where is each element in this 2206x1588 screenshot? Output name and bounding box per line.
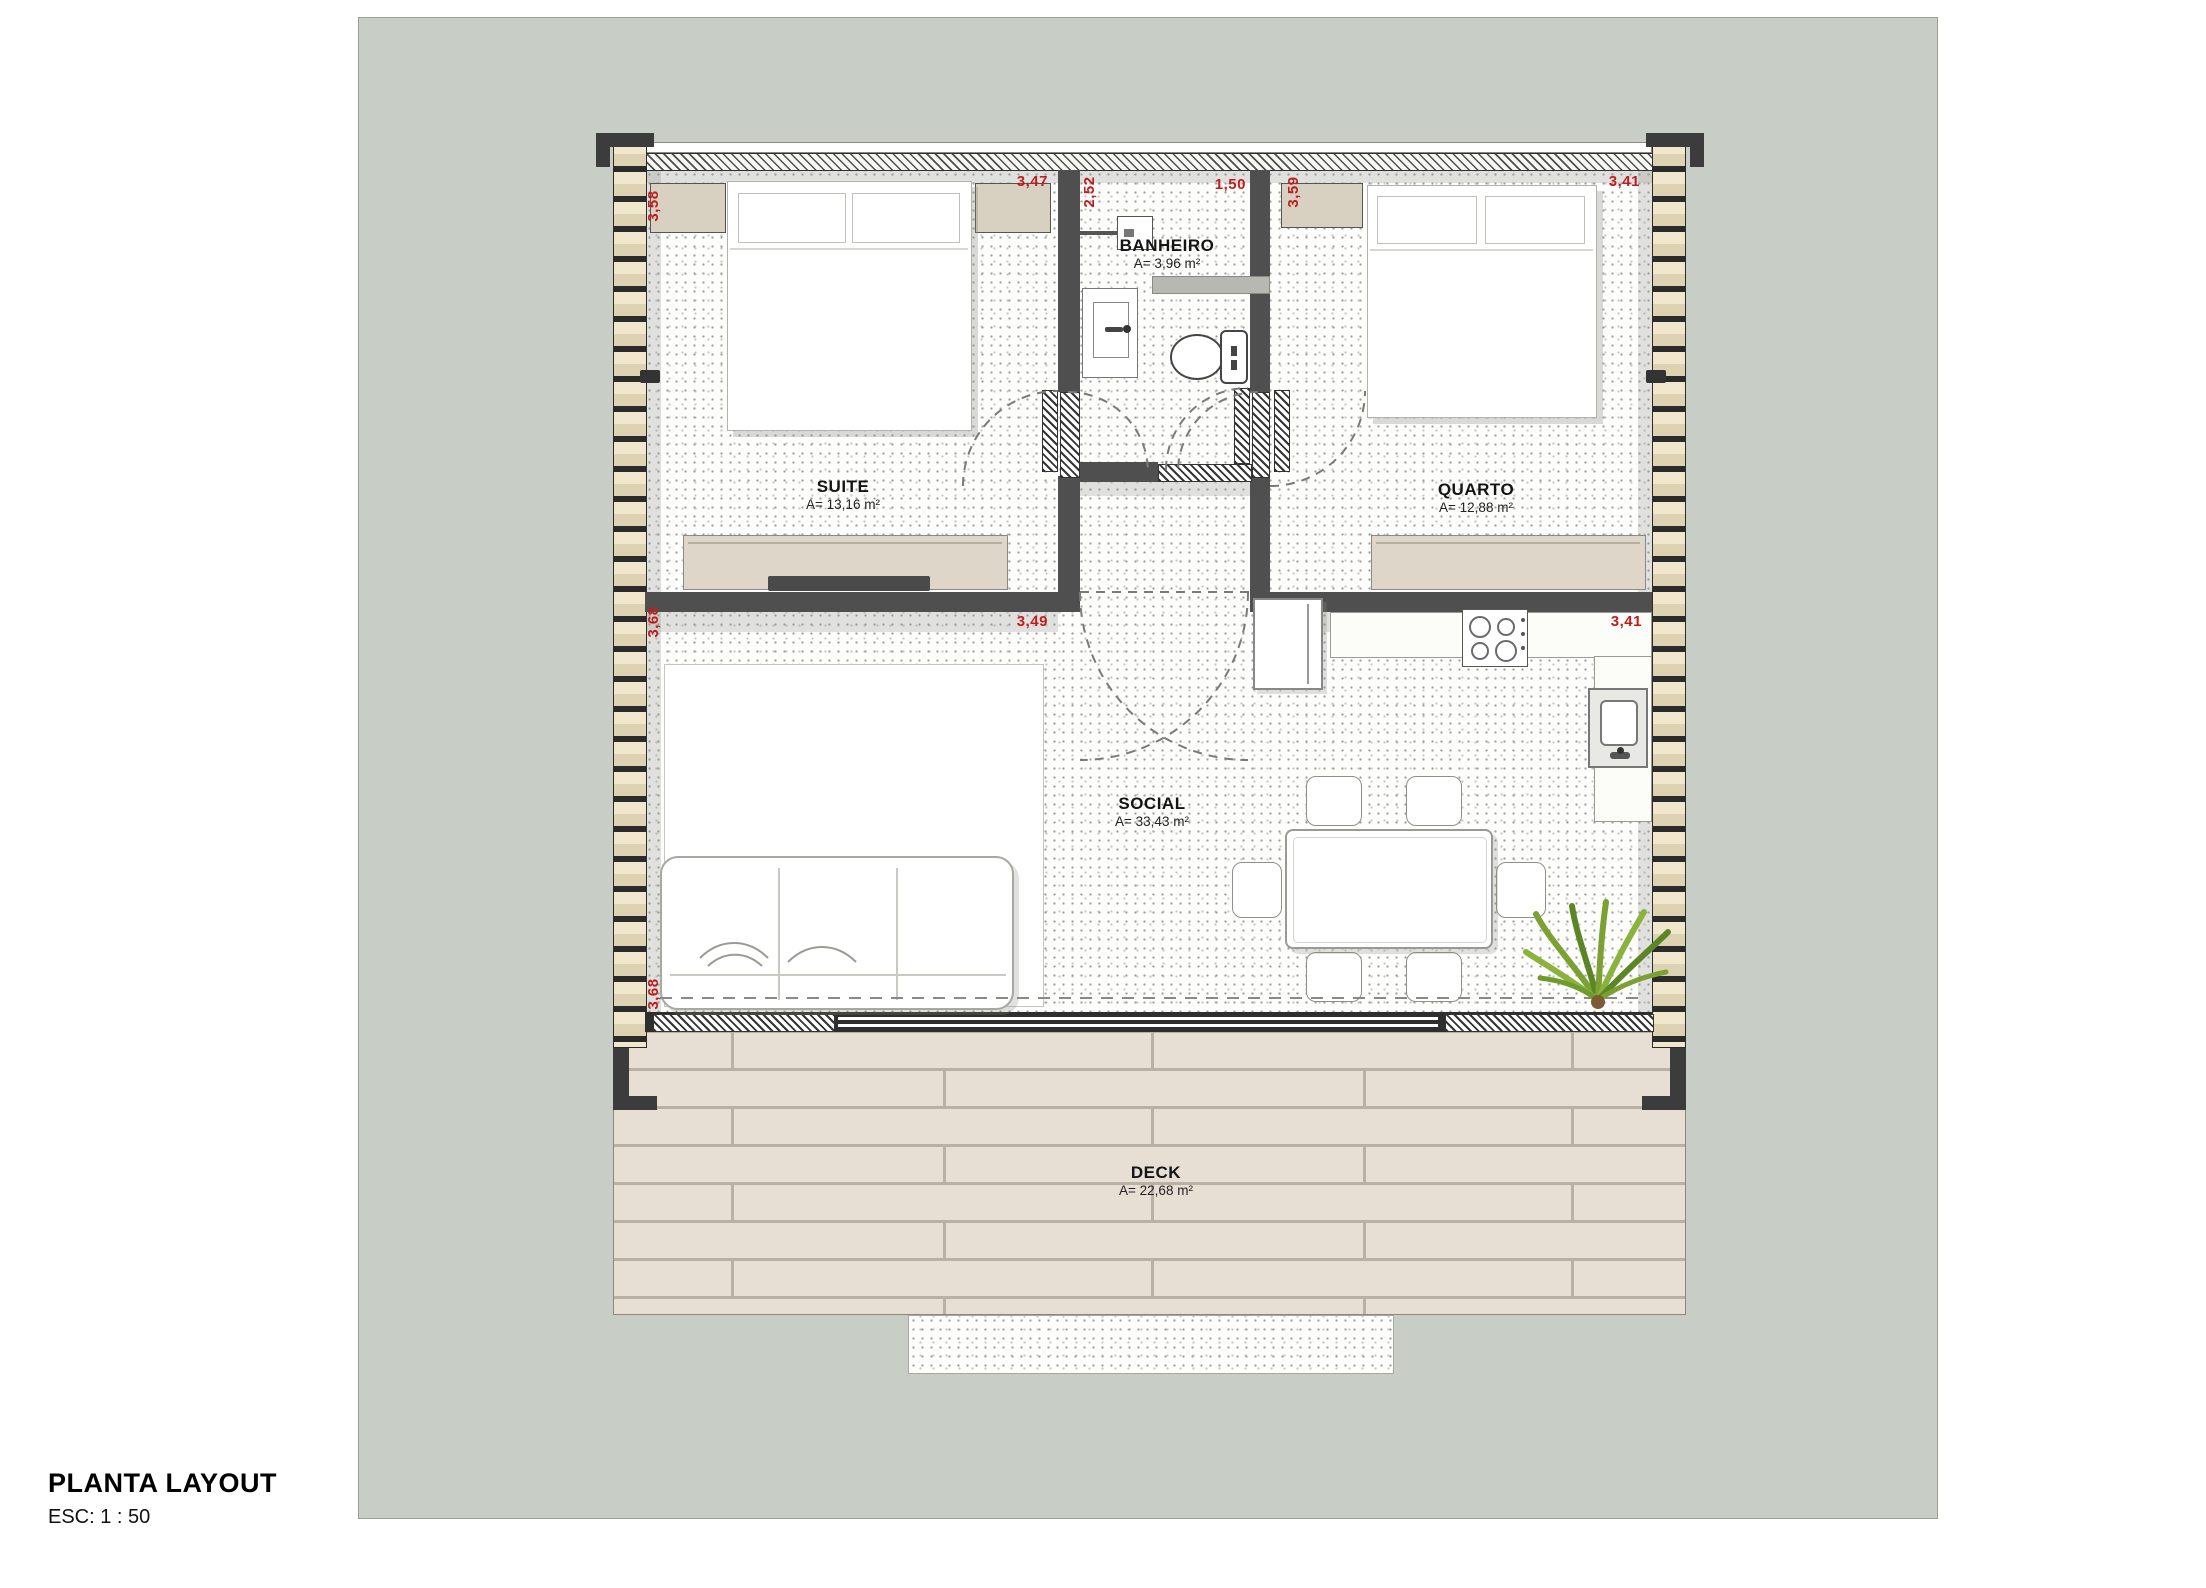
cooktop-knob	[1521, 646, 1525, 650]
room-area-banheiro: A= 3,96 m²	[1067, 256, 1267, 271]
dining-chair	[1306, 952, 1362, 1002]
bathroom-bottom-wall	[1080, 462, 1158, 482]
fridge-door-seam	[1307, 604, 1309, 684]
dresser-edge-line	[1376, 542, 1640, 544]
sofa-seam	[896, 868, 898, 1000]
bathroom-left-wall	[1058, 170, 1080, 392]
dining-chair	[1496, 862, 1546, 918]
burner	[1471, 642, 1489, 660]
dining-table	[1285, 829, 1493, 949]
quarto-dresser	[1371, 535, 1646, 590]
room-area-quarto: A= 12,88 m²	[1376, 500, 1576, 515]
dimension-social-left-upper: 3,68	[646, 599, 662, 645]
dimension-suite-top: 3,47	[968, 174, 1048, 190]
quarto-social-wall	[1270, 592, 1652, 612]
bathroom-right-wall	[1250, 476, 1270, 612]
suite-wardrobe-right	[975, 183, 1051, 233]
suite-door-threshold	[1060, 392, 1080, 478]
room-label-suite: SUITE	[743, 477, 943, 497]
dimension-social-left-lower: 3,68	[646, 971, 662, 1017]
glass-line	[838, 1017, 1438, 1020]
corner-bracket-top-left	[596, 133, 610, 167]
dining-chair	[1306, 776, 1362, 826]
sheet-title: PLANTA LAYOUT	[48, 1468, 277, 1499]
kitchen-sink-basin	[1600, 700, 1638, 746]
corner-bracket-bottom-left	[613, 1096, 657, 1110]
sofa-seam	[778, 868, 780, 1000]
toilet-bowl	[1170, 334, 1224, 380]
bathroom-left-wall	[1058, 476, 1080, 612]
glass-wall-threshold-right	[1445, 1014, 1654, 1032]
room-area-deck: A= 22,68 m²	[1056, 1183, 1256, 1198]
sheet-fold-line	[730, 248, 968, 250]
corner-bracket-top-right	[1690, 133, 1704, 167]
quarto-bed	[1367, 185, 1597, 418]
pillow	[1485, 196, 1585, 244]
dimension-banheiro-top: 1,50	[1168, 177, 1246, 193]
floor-plan-sheet: 3,58 3,47 2,52 1,50 3,59 3,41 3,68 3,49 …	[0, 0, 2206, 1588]
sink-faucet	[1105, 327, 1123, 332]
suite-bed	[727, 181, 972, 431]
cooktop	[1462, 609, 1528, 667]
dining-chair	[1406, 776, 1462, 826]
room-label-banheiro: BANHEIRO	[1067, 236, 1267, 256]
glass-wall-threshold-left	[653, 1014, 835, 1032]
sofa	[660, 856, 1014, 1010]
wall-shadow	[647, 170, 661, 1012]
window-latch-right	[1646, 370, 1666, 383]
fridge	[1253, 598, 1323, 690]
dimension-quarto-left: 3,59	[1286, 169, 1302, 215]
toilet-tank	[1220, 330, 1248, 384]
room-area-suite: A= 13,16 m²	[743, 497, 943, 512]
suite-door-leaf	[1042, 390, 1058, 472]
dining-table-inner-line	[1293, 837, 1487, 943]
quarto-door-leaf	[1274, 390, 1290, 472]
sofa-back-seam	[670, 974, 1006, 976]
bathroom-door-threshold	[1158, 464, 1252, 482]
pillow	[1377, 196, 1477, 244]
toilet-flush-button	[1231, 360, 1237, 370]
cooktop-knob	[1521, 618, 1525, 622]
sheet-fold-line	[1370, 249, 1593, 251]
bathroom-sink-cabinet	[1082, 288, 1138, 378]
wall-shadow	[1080, 482, 1250, 496]
quarto-door-threshold	[1252, 392, 1270, 478]
burner	[1495, 640, 1517, 662]
top-wall	[645, 153, 1652, 171]
suite-social-wall	[645, 592, 1058, 612]
room-area-social: A= 33,43 m²	[1052, 814, 1252, 829]
dimension-quarto-top: 3,41	[1558, 174, 1640, 190]
dimension-banheiro-left: 2,52	[1082, 169, 1098, 215]
kitchen-sink-unit	[1588, 688, 1648, 768]
left-timber-wall	[613, 138, 647, 1048]
dimension-social-top-right: 3,41	[1560, 614, 1642, 630]
toilet-flush-button	[1231, 346, 1237, 356]
room-label-social: SOCIAL	[1052, 794, 1252, 814]
corner-bracket-bottom-right	[1642, 1096, 1686, 1110]
shower-arm	[1080, 231, 1118, 235]
bathroom-door-leaf	[1234, 388, 1250, 464]
burner	[1469, 616, 1491, 638]
room-label-deck: DECK	[1056, 1163, 1256, 1183]
burner	[1497, 618, 1515, 636]
dining-chair	[1406, 952, 1462, 1002]
dining-chair	[1232, 862, 1282, 918]
kitchen-faucet-dot	[1617, 747, 1624, 754]
dimension-suite-left: 3,58	[646, 183, 662, 229]
bathroom-counter	[1152, 276, 1270, 294]
cooktop-knob	[1521, 632, 1525, 636]
pillow	[852, 193, 960, 243]
entry-pad	[908, 1315, 1394, 1374]
room-label-quarto: QUARTO	[1376, 480, 1576, 500]
dresser-edge-line	[688, 542, 1002, 544]
tv-on-dresser	[768, 576, 930, 591]
sheet-scale: ESC: 1 : 50	[48, 1506, 150, 1529]
glass-line	[838, 1024, 1438, 1027]
right-timber-wall	[1652, 138, 1686, 1048]
wall-shadow	[1638, 170, 1652, 1012]
roof-edge-strip	[645, 142, 1652, 153]
window-latch-left	[640, 370, 660, 383]
dimension-social-top-left: 3,49	[968, 614, 1048, 630]
pillow	[738, 193, 846, 243]
sink-faucet-dot	[1123, 325, 1131, 333]
